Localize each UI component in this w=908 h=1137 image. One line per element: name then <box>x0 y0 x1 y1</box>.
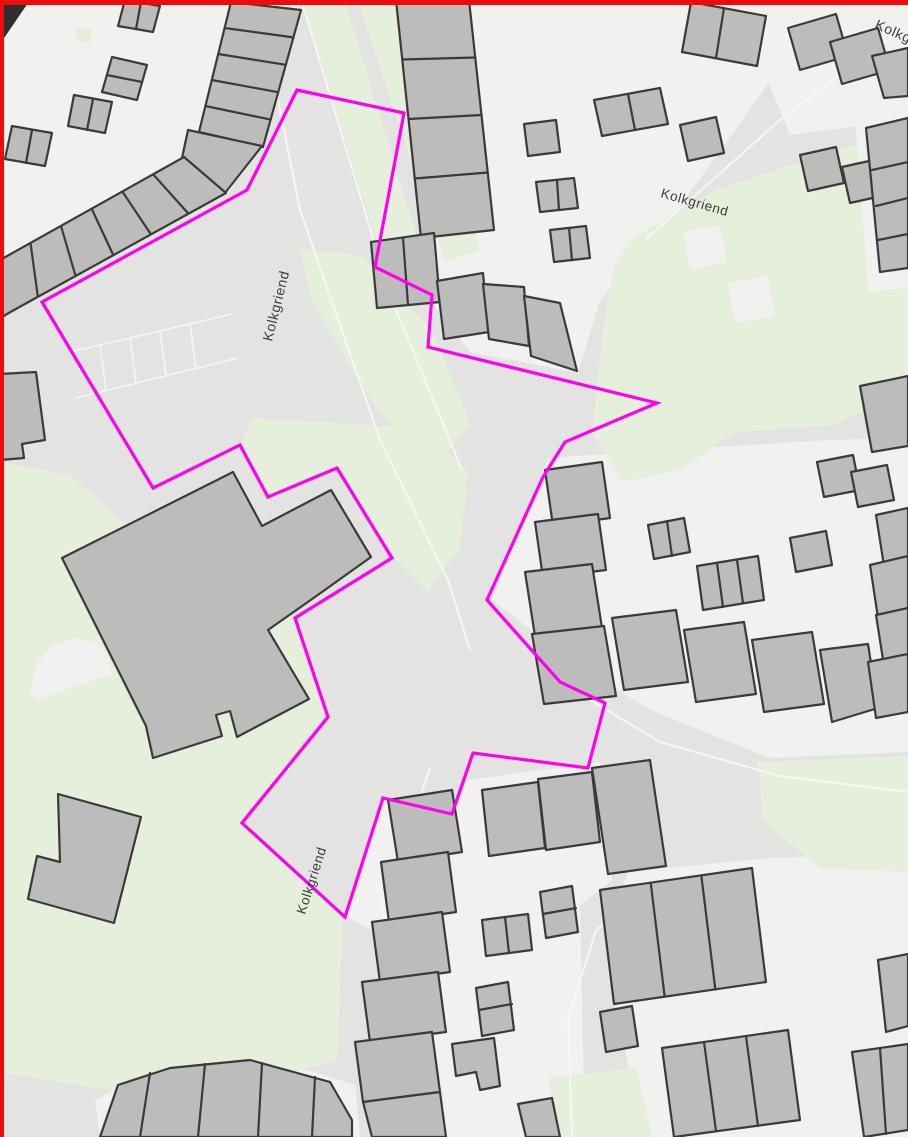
building <box>483 284 529 346</box>
building <box>518 1098 560 1137</box>
building <box>600 868 766 1004</box>
viewport-border-left <box>0 0 4 1137</box>
building <box>612 610 688 690</box>
green-area <box>548 1068 652 1137</box>
building <box>662 1030 800 1137</box>
building <box>600 1006 638 1052</box>
building <box>684 622 756 702</box>
building <box>355 1032 440 1102</box>
building <box>790 531 832 572</box>
building <box>524 120 560 156</box>
building <box>752 632 824 712</box>
building <box>525 564 602 636</box>
building <box>868 654 908 718</box>
green-area <box>75 27 92 43</box>
building <box>362 972 446 1042</box>
white-overlay-area <box>728 276 775 323</box>
building <box>800 147 844 191</box>
white-overlay-area <box>683 225 727 269</box>
building <box>851 465 894 507</box>
map-canvas[interactable]: KolkgriendKolkgriendKolkgriendKolkgriend <box>0 0 908 1137</box>
building <box>381 852 456 922</box>
building <box>538 772 600 850</box>
map-viewport[interactable]: KolkgriendKolkgriendKolkgriendKolkgriend <box>0 0 908 1137</box>
building <box>680 117 724 161</box>
building <box>697 556 764 610</box>
building <box>482 782 545 856</box>
viewport-border-top <box>0 0 908 5</box>
building <box>437 273 489 339</box>
